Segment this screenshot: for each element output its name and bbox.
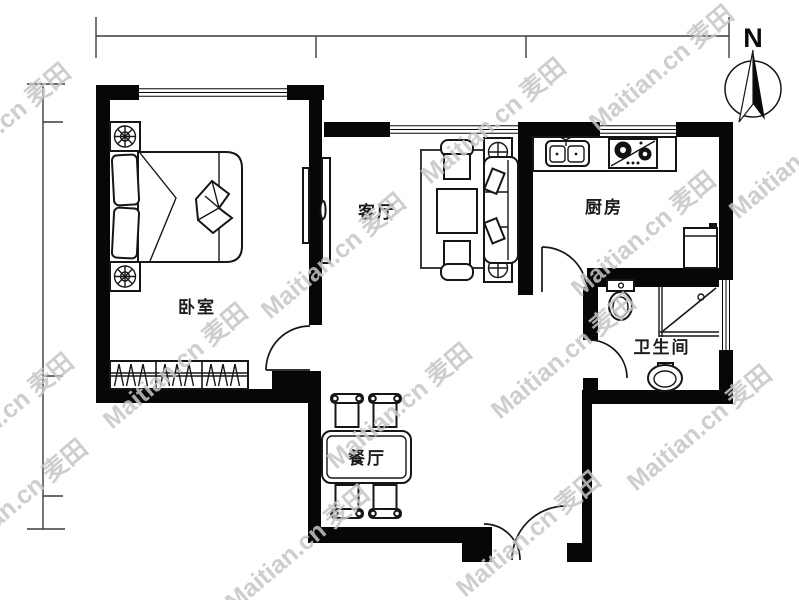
bedroom-door [266, 326, 310, 370]
bed [112, 152, 242, 262]
watermark-text: Maitian.cn 麦田 [486, 288, 641, 425]
nightstand-bottom [110, 262, 140, 291]
shower [659, 287, 719, 337]
shower-door [663, 288, 716, 331]
sink-icon [546, 136, 589, 166]
compass: N [725, 23, 781, 122]
watermark-text: Maitian.cn 麦田 [584, 0, 739, 137]
watermark-text: Maitian.cn 麦田 [0, 434, 93, 571]
washbasin [648, 363, 682, 391]
sofa [484, 157, 518, 263]
watermark-text: Maitian.cn 麦田 [622, 360, 777, 497]
wall-bathroom-west-lower [583, 378, 598, 390]
wall-bedroom-west [96, 85, 110, 403]
wall-kitchen-west [518, 122, 533, 295]
stove-icon [609, 139, 657, 168]
floorplan-svg: N [0, 0, 799, 600]
floorplan-canvas: N [0, 0, 799, 600]
wall-bedroom-door-stub [272, 371, 321, 389]
tv-icon [320, 201, 325, 219]
bedroom-label: 卧室 [178, 297, 216, 317]
armchair-bottom [441, 241, 473, 280]
watermark-text: Maitian.cn 麦田 [0, 58, 76, 195]
kitchen-label: 厨房 [585, 197, 623, 217]
north-label: N [743, 23, 763, 53]
fridge [684, 223, 717, 268]
coffee-table [437, 189, 477, 233]
window-bedroom [139, 85, 287, 100]
nightstand-top [110, 122, 140, 151]
bathroom-label: 卫生间 [634, 337, 691, 357]
dimension-line-top [96, 17, 729, 58]
shower-handle [698, 294, 704, 300]
watermark-text: Maitian.cn 麦田 [256, 188, 411, 325]
compass-needle-icon [739, 50, 765, 122]
entry-jamb-right [567, 543, 592, 562]
window-bathroom [719, 280, 733, 350]
